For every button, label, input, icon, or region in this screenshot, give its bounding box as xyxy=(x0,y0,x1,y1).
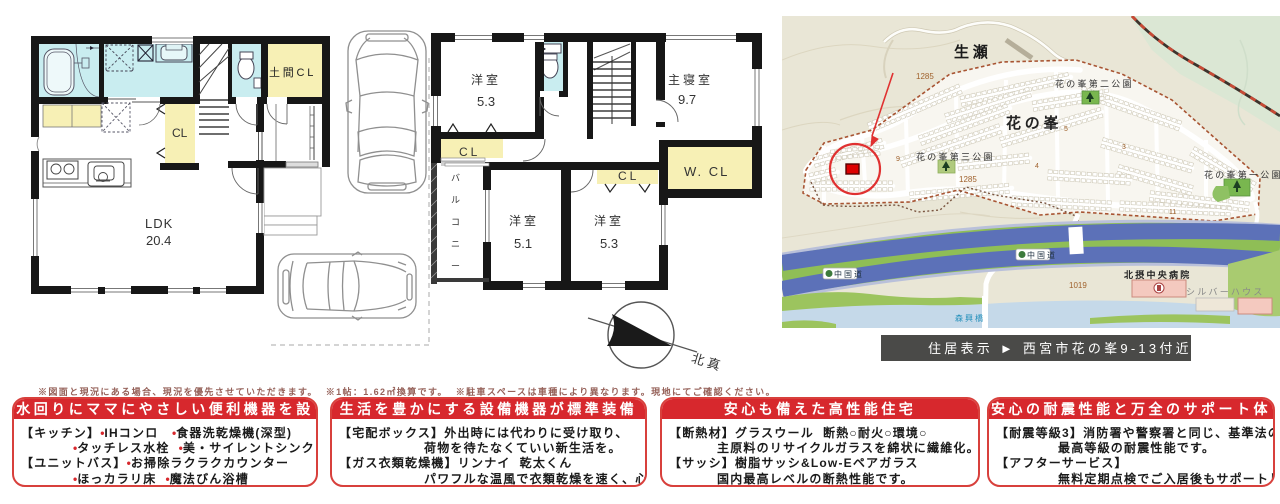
svg-text:9: 9 xyxy=(896,156,900,163)
svg-text:5: 5 xyxy=(1064,126,1068,133)
svg-text:中国道: 中国道 xyxy=(834,269,864,279)
svg-text:花の峯第一公園: 花の峯第一公園 xyxy=(1204,169,1280,180)
svg-text:土間CL: 土間CL xyxy=(269,66,316,79)
svg-text:洋室: 洋室 xyxy=(594,213,624,228)
svg-text:LDK: LDK xyxy=(145,216,173,231)
svg-text:ニ: ニ xyxy=(451,239,462,249)
svg-text:CL: CL xyxy=(172,126,188,140)
svg-text:1285: 1285 xyxy=(959,175,977,184)
svg-text:洋室: 洋室 xyxy=(471,72,501,87)
svg-text:5.3: 5.3 xyxy=(600,236,618,251)
svg-text:CL: CL xyxy=(618,169,639,183)
svg-text:生瀬: 生瀬 xyxy=(954,43,992,61)
svg-text:花の峯第二公園: 花の峯第二公園 xyxy=(1055,78,1134,89)
svg-text:ル: ル xyxy=(451,195,462,205)
svg-text:W. CL: W. CL xyxy=(684,164,729,179)
svg-text:CL: CL xyxy=(459,145,480,159)
svg-text:5.1: 5.1 xyxy=(514,236,532,251)
svg-text:ー: ー xyxy=(451,261,462,271)
svg-text:3: 3 xyxy=(1122,144,1126,151)
svg-text:20.4: 20.4 xyxy=(146,233,171,248)
svg-text:北真: 北真 xyxy=(690,350,725,374)
svg-text:住居表示 ► 西宮市花の峯9-13付近: 住居表示 ► 西宮市花の峯9-13付近 xyxy=(928,341,1192,356)
svg-text:シルバーハウス: シルバーハウス xyxy=(1186,287,1265,297)
svg-text:1285: 1285 xyxy=(916,72,934,81)
svg-text:1019: 1019 xyxy=(1069,281,1087,290)
svg-text:コ: コ xyxy=(451,217,462,227)
svg-text:洋室: 洋室 xyxy=(509,213,539,228)
svg-text:花の峯第三公園: 花の峯第三公園 xyxy=(916,151,995,162)
svg-text:11: 11 xyxy=(1169,209,1176,216)
svg-text:花の峯: 花の峯 xyxy=(1006,114,1062,132)
svg-text:9.7: 9.7 xyxy=(678,92,696,107)
svg-text:4: 4 xyxy=(1035,163,1039,170)
svg-text:中国道: 中国道 xyxy=(1027,250,1057,260)
svg-text:北摂中央病院: 北摂中央病院 xyxy=(1124,269,1192,280)
svg-text:バ: バ xyxy=(451,173,462,183)
svg-text:主寝室: 主寝室 xyxy=(668,72,713,87)
svg-text:5.3: 5.3 xyxy=(477,94,495,109)
svg-text:森興橋: 森興橋 xyxy=(955,313,985,323)
